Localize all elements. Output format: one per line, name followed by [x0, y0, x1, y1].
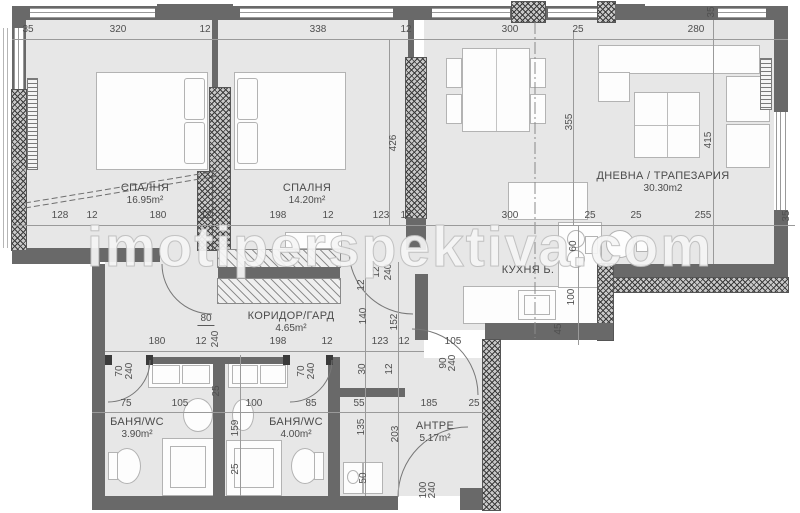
- outside-area: [613, 292, 800, 513]
- room-name: АНТРЕ: [416, 420, 454, 433]
- wall-pillar: [157, 4, 233, 20]
- window: [240, 8, 393, 18]
- wall: [415, 274, 428, 340]
- dimension-line: [398, 262, 399, 496]
- dimension-line: [12, 39, 788, 40]
- room-label-bedroom-2: СПАЛНЯ 14.20m²: [283, 182, 331, 207]
- wall: [213, 357, 225, 496]
- wall-hatched: [406, 58, 426, 218]
- bath-sink: [232, 365, 258, 384]
- dimension-label: 180: [149, 337, 166, 347]
- window: [432, 8, 510, 18]
- wall-hatched: [12, 90, 26, 250]
- door-post: [146, 355, 153, 365]
- dimension-line: [105, 351, 424, 352]
- dimension-label: 35: [782, 210, 792, 221]
- pillow: [237, 122, 258, 164]
- dimension-label: 30: [358, 363, 368, 374]
- dimension-label: 75: [120, 399, 131, 409]
- room-name: БАНЯ/WC: [269, 416, 323, 429]
- dimension-label: 152: [390, 314, 400, 331]
- dimension-label: 426: [389, 135, 399, 152]
- dimension-label: 128: [52, 211, 69, 221]
- room-label-living: ДНЕВНА / ТРАПЕЗАРИЯ 30.30m2: [597, 170, 730, 195]
- wall: [92, 264, 105, 510]
- dimension-label: 12: [400, 25, 411, 35]
- watermark: imotiperspektiva.com: [87, 214, 713, 280]
- dimension-label: 80: [197, 314, 214, 326]
- room-label-bedroom-1: СПАЛНЯ 16.95m²: [121, 182, 169, 207]
- dimension-label: 203: [391, 426, 401, 443]
- dimension-line: [365, 262, 366, 496]
- dimension-label: 12: [357, 279, 367, 290]
- shower-tray: [170, 446, 206, 488]
- dimension-label: 198: [270, 337, 287, 347]
- room-name: СПАЛНЯ: [121, 182, 169, 195]
- facade-line: [3, 28, 4, 248]
- wardrobe-closet: [218, 279, 340, 303]
- dimension-label: 85: [305, 399, 316, 409]
- wall: [92, 496, 398, 510]
- door-post: [283, 355, 290, 365]
- dimension-label: 100: [246, 399, 263, 409]
- window: [548, 8, 598, 18]
- door-post: [105, 355, 112, 365]
- dimension-label: 25: [212, 385, 222, 396]
- dimension-label: 320: [110, 25, 127, 35]
- pillow: [184, 122, 205, 164]
- dimension-label: 123: [372, 337, 389, 347]
- dimension-label: 355: [565, 114, 575, 131]
- dimension-label: 35: [707, 6, 717, 17]
- dimension-label: 12: [398, 337, 409, 347]
- dimension-label: 159: [231, 420, 241, 437]
- room-area: 5.17m²: [416, 433, 454, 445]
- wall-hatched: [512, 2, 545, 22]
- room-name: ДНЕВНА / ТРАПЕЗАРИЯ: [597, 170, 730, 183]
- dimension-label: 25: [231, 463, 241, 474]
- dimension-label: 100: [567, 289, 577, 306]
- dimension-label: 240: [307, 363, 317, 380]
- radiator: [760, 58, 772, 110]
- dimension-label: 12: [195, 337, 206, 347]
- chair: [446, 94, 462, 124]
- sofa: [598, 45, 760, 74]
- dimension-label: 135: [357, 419, 367, 436]
- dimension-label: 35: [22, 25, 33, 35]
- window: [776, 112, 786, 210]
- room-label-corridor: КОРИДОР/ГАРД 4.65m²: [248, 310, 335, 335]
- wall: [335, 388, 405, 397]
- wall-hatched: [598, 2, 615, 22]
- window: [718, 8, 766, 18]
- outside-area: [500, 340, 613, 513]
- wall: [485, 323, 613, 340]
- wall-pillar: [615, 4, 645, 20]
- pillow: [184, 78, 205, 120]
- dimension-label: 50: [359, 472, 369, 483]
- room-area: 3.90m²: [110, 429, 164, 441]
- floor-plan: 3532012338123002528035128121801219812123…: [0, 0, 800, 513]
- dimension-label: 300: [502, 25, 519, 35]
- dimension-label: 12: [199, 25, 210, 35]
- chair: [530, 58, 546, 88]
- dimension-label: 240: [448, 355, 458, 372]
- wall-hatched: [613, 278, 788, 292]
- dimension-label: 12: [385, 363, 395, 374]
- armchair: [726, 124, 770, 168]
- dimension-label: 105: [172, 399, 189, 409]
- dining-table: [462, 48, 530, 132]
- room-label-bath-1: БАНЯ/WC 3.90m²: [110, 416, 164, 441]
- pillow: [237, 78, 258, 120]
- dimension-label: 45: [554, 323, 564, 334]
- facade-line: [7, 28, 8, 248]
- room-name: БАНЯ/WC: [110, 416, 164, 429]
- toilet-tank: [108, 452, 118, 480]
- wall: [328, 357, 340, 496]
- bath-sink: [260, 365, 286, 384]
- dimension-label: 240: [211, 331, 221, 348]
- dimension-label: 185: [421, 399, 438, 409]
- door-post: [326, 355, 333, 365]
- bath-sink: [152, 365, 180, 384]
- room-area: 16.95m²: [121, 195, 169, 207]
- dimension-label: 240: [125, 363, 135, 380]
- dimension-label: 55: [353, 399, 364, 409]
- wall-hatched: [483, 340, 500, 510]
- bath-sink: [182, 365, 210, 384]
- wall: [774, 20, 788, 112]
- room-area: 4.65m²: [248, 323, 335, 335]
- chair: [446, 58, 462, 88]
- dimension-label: 415: [704, 132, 714, 149]
- dimension-label: 280: [688, 25, 705, 35]
- room-area: 14.20m²: [283, 195, 331, 207]
- sofa-corner: [598, 72, 630, 102]
- dimension-label: 240: [428, 482, 438, 499]
- room-area: 30.30m2: [597, 183, 730, 195]
- dimension-label: 338: [310, 25, 327, 35]
- room-name: СПАЛНЯ: [283, 182, 331, 195]
- chair: [530, 94, 546, 124]
- dimension-label: 25: [572, 25, 583, 35]
- window: [30, 8, 155, 18]
- room-area: 4.00m²: [269, 429, 323, 441]
- window: [14, 28, 24, 90]
- room-label-bath-2: БАНЯ/WC 4.00m²: [269, 416, 323, 441]
- toilet-tank: [314, 452, 324, 480]
- dimension-label: 12: [321, 337, 332, 347]
- dimension-label: 105: [445, 337, 462, 347]
- kitchen-sink-basin: [524, 295, 550, 315]
- coffee-table: [634, 92, 700, 158]
- radiator: [27, 78, 38, 170]
- dimension-label: 140: [359, 308, 369, 325]
- dimension-line: [389, 39, 390, 225]
- dimension-label: 25: [468, 399, 479, 409]
- wall: [212, 20, 218, 90]
- room-label-entry: АНТРЕ 5.17m²: [416, 420, 454, 445]
- room-name: КОРИДОР/ГАРД: [248, 310, 335, 323]
- dimension-line: [92, 412, 483, 413]
